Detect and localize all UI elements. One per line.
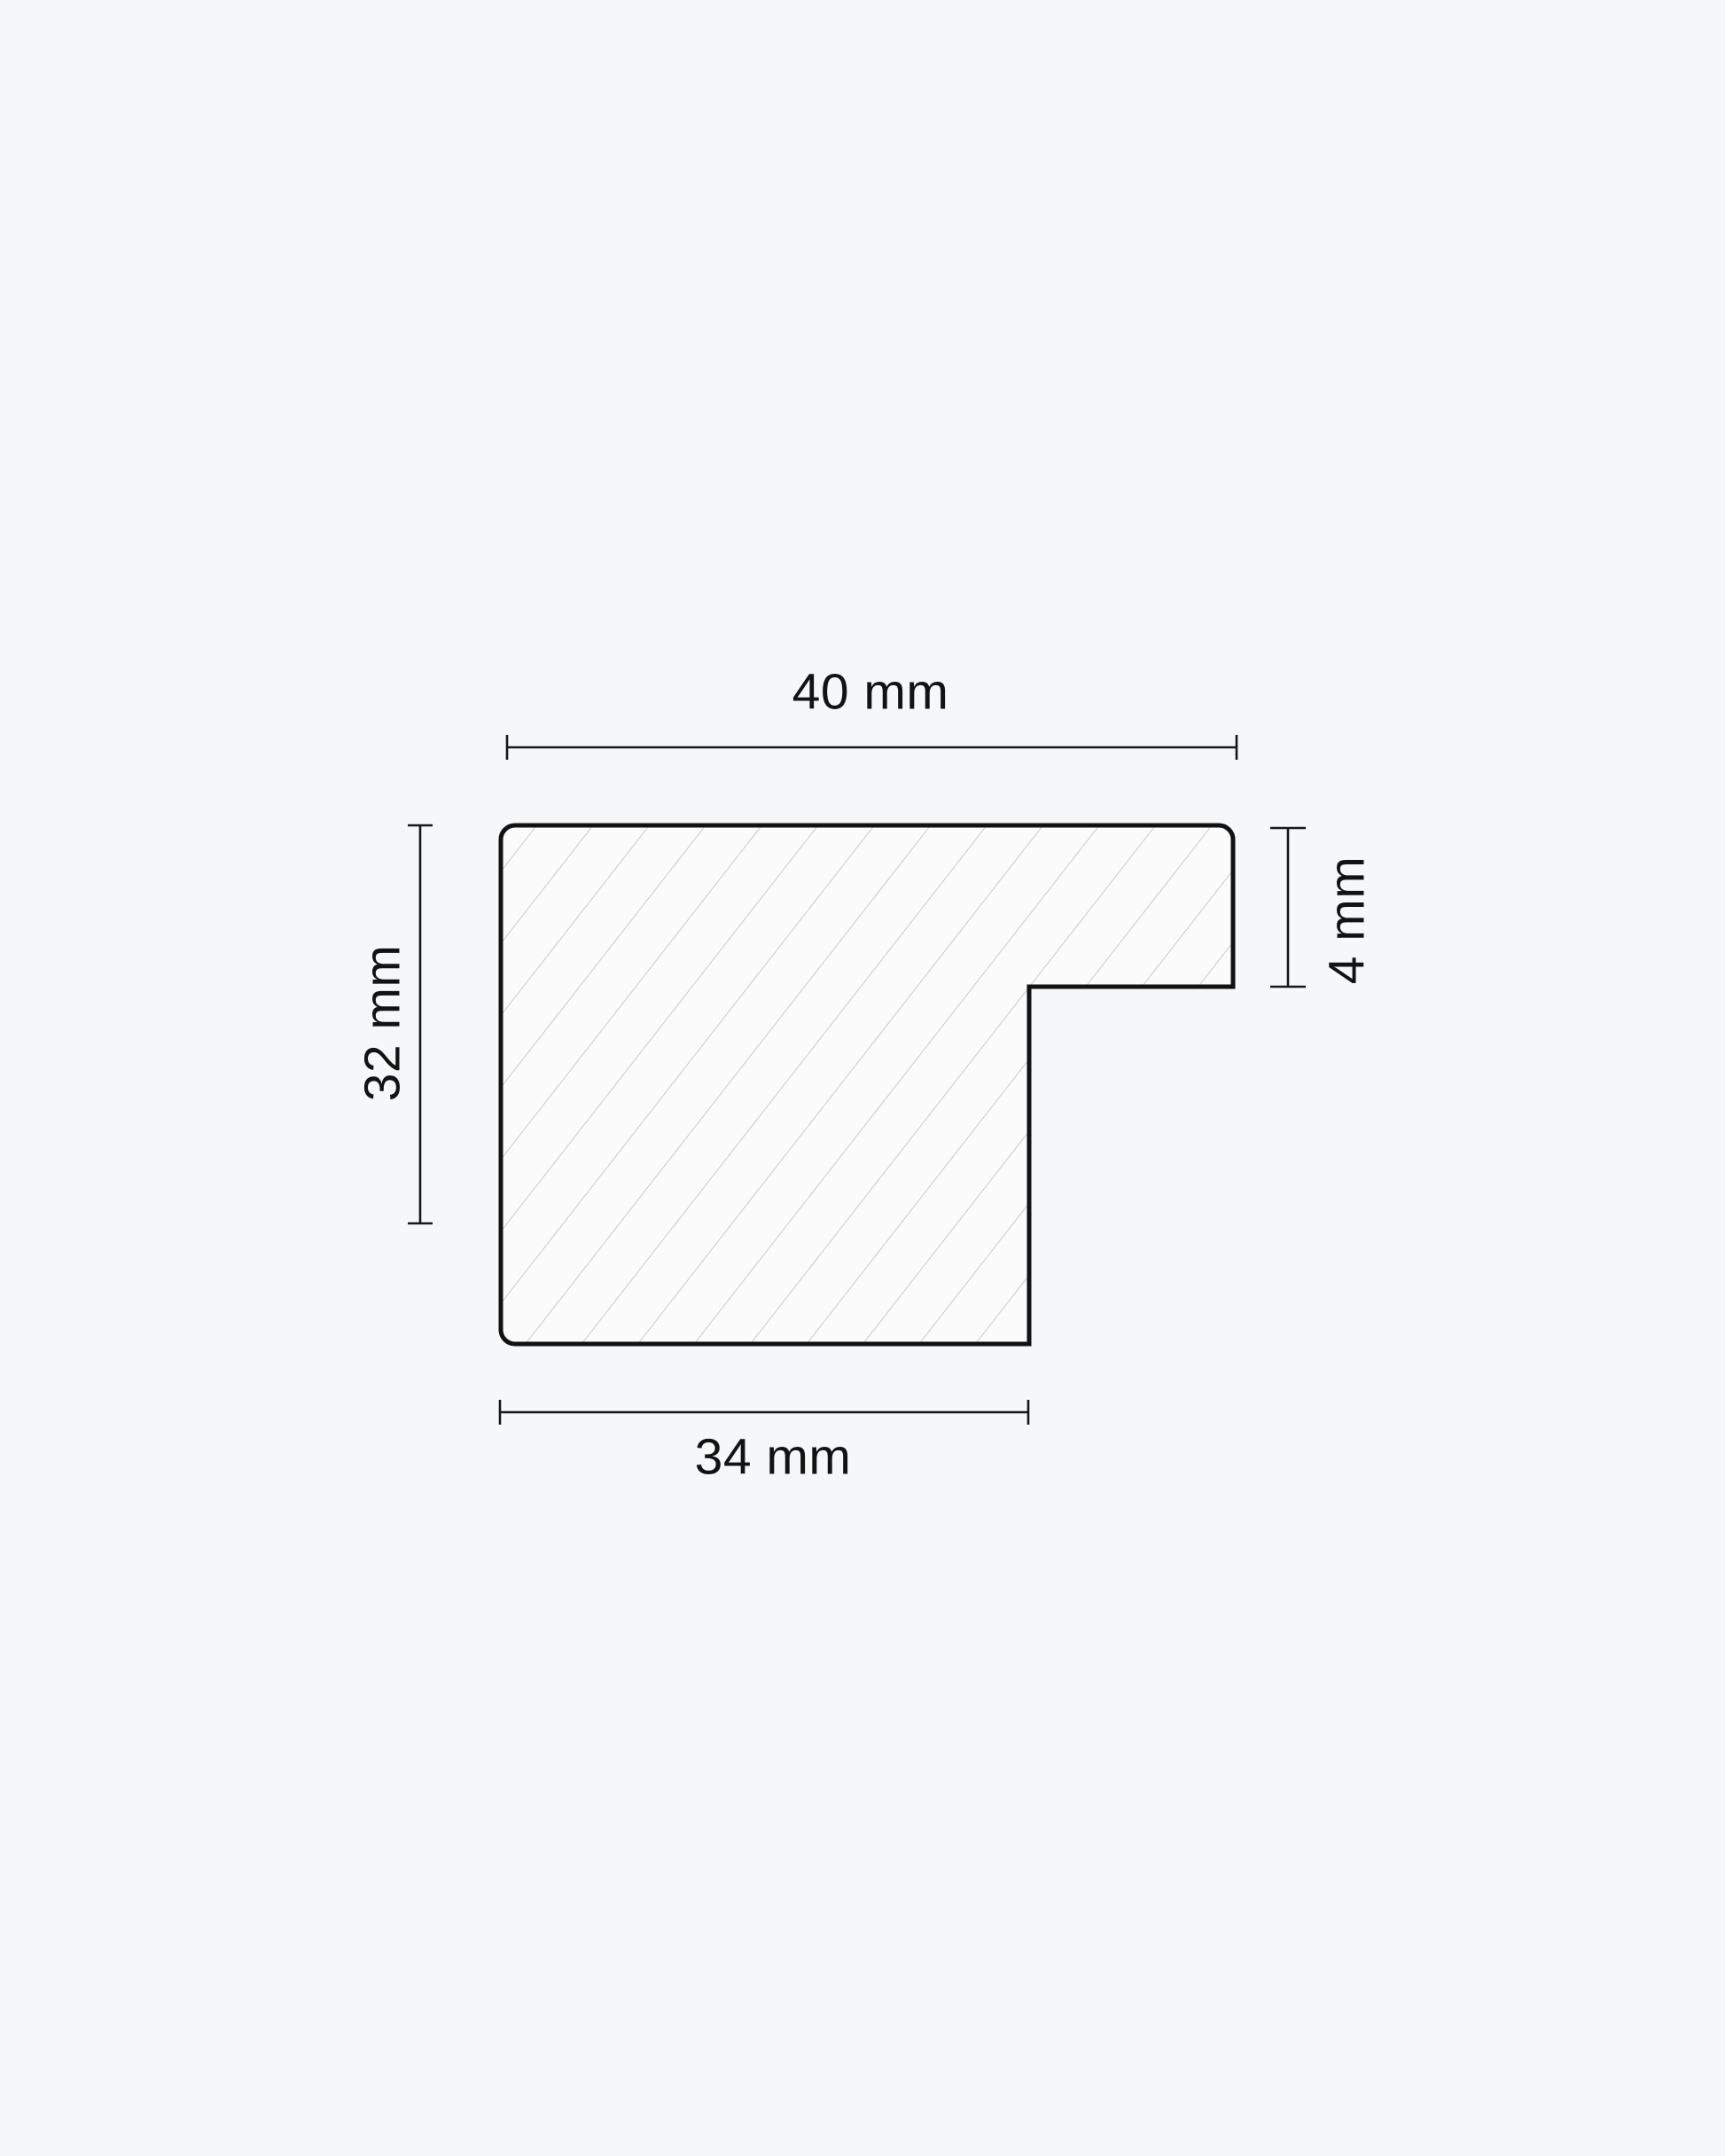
dimension-label-bottom-width: 34 mm [695, 1433, 852, 1483]
dimension-label-top-width: 40 mm [792, 668, 949, 718]
dimension-bottom-width [500, 1400, 1028, 1425]
dimension-left-height [408, 825, 433, 1223]
dimension-top-width [507, 735, 1237, 760]
diagram-canvas: 40 mm 32 mm 4 mm 34 mm [0, 0, 1725, 2156]
dimension-label-left-height: 32 mm [358, 945, 409, 1102]
dimension-right-depth [1270, 828, 1306, 987]
dimension-label-right-depth: 4 mm [1323, 856, 1373, 985]
profile-shape [501, 825, 1233, 1344]
profile-drawing [0, 0, 1725, 2156]
